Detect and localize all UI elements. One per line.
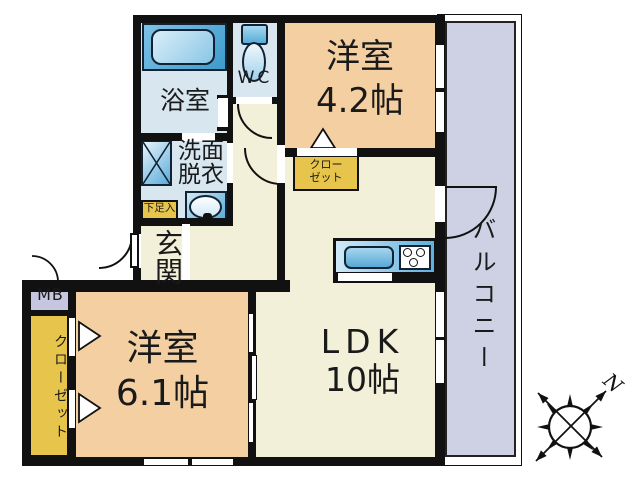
kitchen-sink-icon [344,246,394,269]
stove-burner [416,248,425,257]
closet-left-opening [69,318,75,356]
label-balcony: バルコニー [460,202,494,392]
wc-door-opening [236,97,272,104]
wall [22,457,445,466]
label-bedroom-6-1-size: 6.1帖 [85,375,240,413]
stove-burner [403,248,412,257]
wall [22,282,30,466]
sliding-door-panel [248,402,254,443]
label-bedroom-4-2-size: 4.2帖 [285,84,435,120]
sliding-door-panel [248,313,254,353]
label-bedroom-6-1-name: 洋室 [85,330,240,368]
window-bedroom-4-2 [436,92,444,132]
balcony-door-opening [435,186,445,222]
window-ldk [436,340,444,383]
label-ldk-name: LDK [295,325,430,360]
label-closet-left: クローゼット [31,322,67,454]
entrance-door-leaf [130,233,139,268]
label-ldk-size: 10帖 [295,363,430,398]
window-ldk [436,292,444,337]
label-washroom-line2: 脱衣 [170,163,232,187]
window-bedroom-6-1 [144,459,188,465]
closet-upper-door-strip [297,148,357,156]
label-washroom-line1: 洗面 [170,139,232,163]
compass-north-label: N [598,368,629,399]
sliding-door-panel [251,355,257,400]
stove-burner [409,258,418,267]
washing-machine-icon [141,140,172,186]
label-closet-upper-line2: ゼット [293,171,359,184]
floor-plan: 浴室 WC 洗面 脱衣 下足入 玄関 洋室 4.2帖 クロー ゼット MB クロ… [0,0,640,480]
wall [68,292,76,457]
kitchen-cabinet-strip [338,273,392,281]
label-washroom: 洗面 脱衣 [170,139,232,187]
label-meter-box: MB [29,287,72,304]
wall [217,127,228,131]
label-entrance: 玄関 [150,224,182,290]
label-closet-upper: クロー ゼット [293,158,359,184]
compass-rose-icon [536,391,606,461]
label-bedroom-4-2-name: 洋室 [285,40,435,76]
label-wc: WC [233,70,277,88]
label-shoe-cabinet: 下足入 [142,203,177,214]
door-swing-arc-meter-box [32,256,58,282]
label-closet-upper-line1: クロー [293,158,359,171]
wall [133,15,445,23]
label-bathroom: 浴室 [150,88,220,114]
window-bedroom-4-2 [436,45,444,88]
window-bedroom-6-1 [192,459,233,465]
ldk-door-opening [277,145,285,183]
door-swing-arc-entrance [99,235,132,268]
bathtub-icon [151,29,215,65]
closet-left-opening [69,390,75,428]
